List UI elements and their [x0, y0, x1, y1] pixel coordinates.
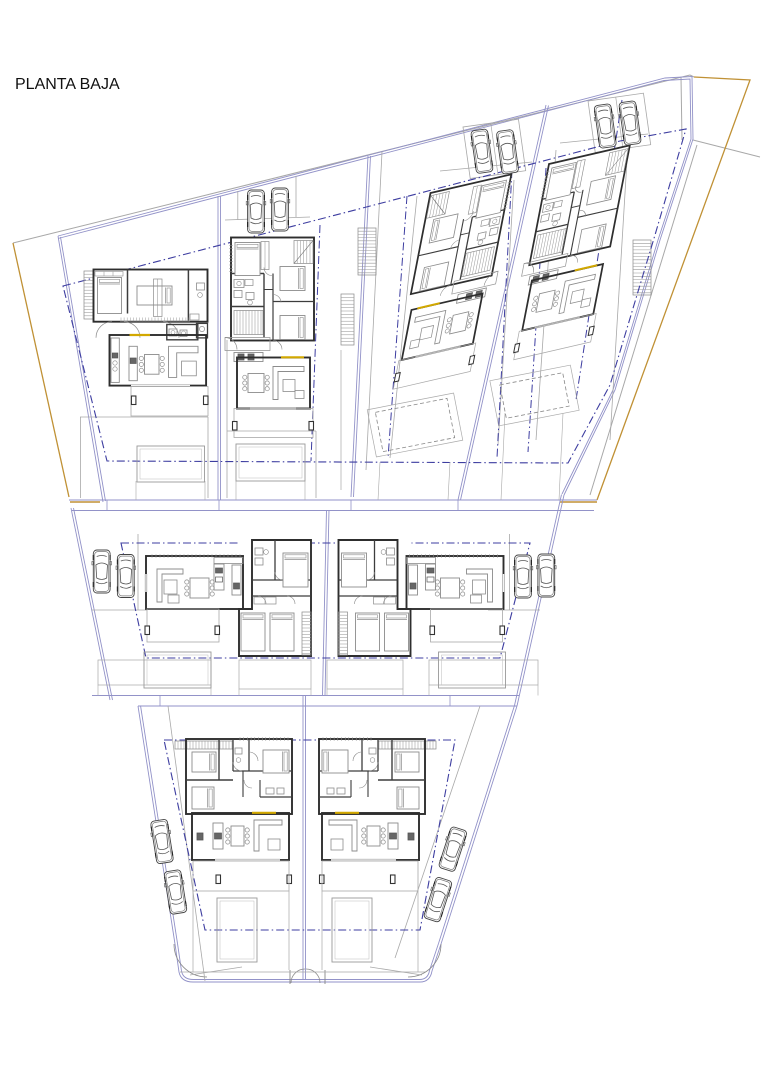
- svg-text:PLANTA BAJA: PLANTA BAJA: [15, 76, 120, 93]
